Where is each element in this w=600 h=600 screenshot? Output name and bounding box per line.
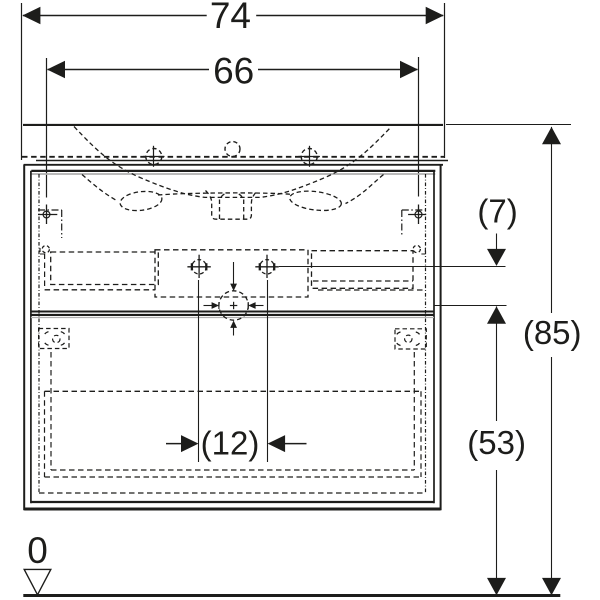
svg-text:(53): (53) — [467, 424, 526, 461]
svg-text:66: 66 — [213, 51, 254, 92]
svg-text:74: 74 — [210, 0, 251, 36]
svg-text:(12): (12) — [201, 424, 260, 461]
svg-text:(85): (85) — [523, 314, 582, 351]
svg-text:(7): (7) — [477, 192, 517, 229]
svg-text:0: 0 — [27, 530, 48, 571]
